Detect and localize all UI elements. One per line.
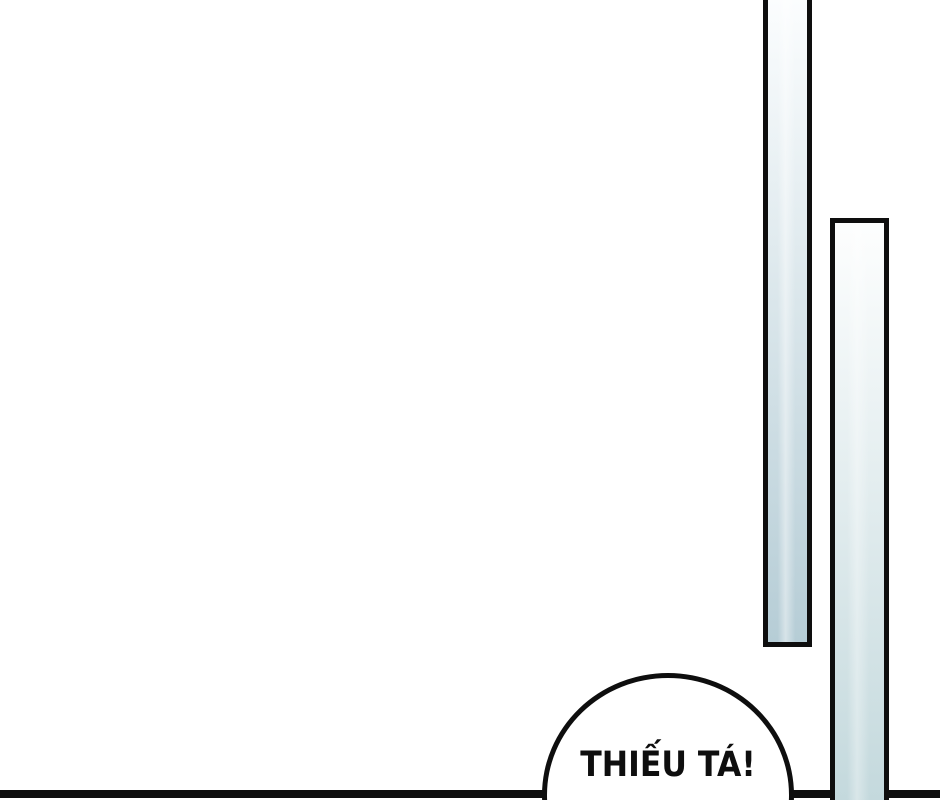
pole-right: [830, 218, 889, 800]
speech-bubble-text: THIẾU TÁ!: [555, 744, 782, 786]
panel-bottom-border: [0, 790, 940, 798]
comic-panel: THIẾU TÁ!: [0, 0, 940, 800]
pole-left: [763, 0, 812, 647]
